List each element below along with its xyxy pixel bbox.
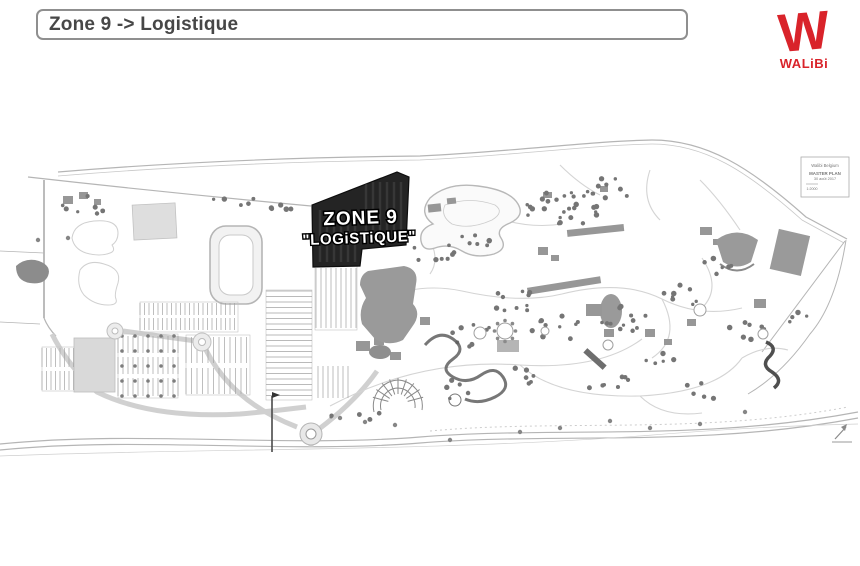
lazy-river [421, 185, 520, 256]
walibi-logo: W WALiBi [766, 2, 842, 78]
zone-9-highlight: ZONE 9 "LOGiSTiQUE" [301, 172, 416, 267]
roller-coaster [425, 335, 506, 401]
walibi-logo-graphic: W WALiBi [766, 2, 842, 78]
park-master-plan-map: ZONE 9 "LOGiSTiQUE" Walibi Belgium MASTE… [0, 126, 860, 471]
zone-label-line1: ZONE 9 [323, 207, 398, 231]
map-legend-box: Walibi Belgium MASTER PLAN 30 août 2017 … [801, 157, 849, 197]
main-building [360, 266, 417, 343]
legend-line1: Walibi Belgium [811, 163, 839, 168]
walibi-w-icon: W [776, 2, 832, 64]
slide-title: Zone 9 -> Logistique [49, 14, 238, 36]
theater-building [716, 233, 758, 267]
legend-line3: 30 août 2017 [814, 177, 836, 181]
slide-canvas: { "header": { "title": "Zone 9 -> Logist… [0, 0, 860, 566]
amphitheater [373, 378, 423, 412]
carousel [497, 323, 513, 339]
map-container: ZONE 9 "LOGiSTiQUE" Walibi Belgium MASTE… [0, 126, 860, 471]
slide-title-box: Zone 9 -> Logistique [36, 9, 688, 40]
map-roads [0, 140, 858, 456]
legend-line2: MASTER PLAN [809, 171, 841, 176]
north-arrow-icon [832, 424, 852, 442]
stadium-building [770, 229, 810, 276]
walibi-brand-text: WALiBi [780, 56, 829, 71]
legend-line4: 1:2000 [807, 187, 818, 191]
